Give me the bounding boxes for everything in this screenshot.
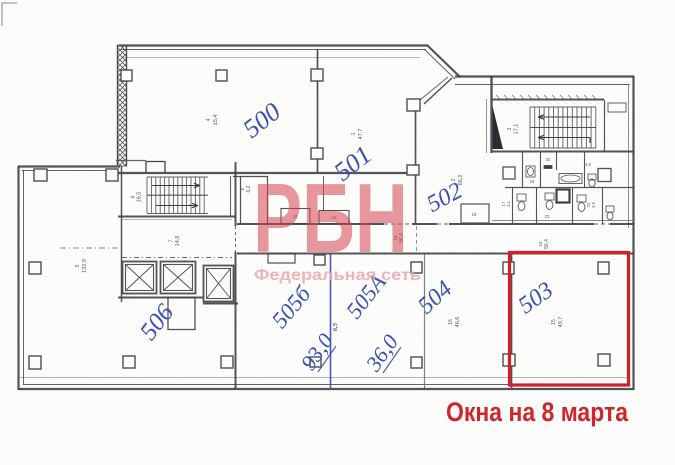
svg-text:16: 16 bbox=[448, 319, 454, 325]
svg-text:6,2: 6,2 bbox=[246, 185, 252, 192]
svg-text:14,9: 14,9 bbox=[175, 236, 181, 247]
svg-text:2: 2 bbox=[451, 178, 457, 181]
svg-text:15: 15 bbox=[551, 319, 557, 325]
svg-text:46,6: 46,6 bbox=[455, 317, 461, 328]
svg-text:47,7: 47,7 bbox=[358, 129, 364, 140]
svg-text:Окна на 8 марта: Окна на 8 марта bbox=[446, 397, 629, 427]
svg-text:5: 5 bbox=[75, 264, 81, 267]
svg-text:16,5: 16,5 bbox=[137, 192, 143, 203]
svg-text:23: 23 bbox=[545, 214, 550, 219]
svg-text:132,9: 132,9 bbox=[82, 259, 88, 273]
svg-text:3,6: 3,6 bbox=[591, 201, 596, 207]
svg-text:56,4: 56,4 bbox=[544, 239, 550, 249]
svg-text:20: 20 bbox=[546, 157, 551, 162]
svg-text:4,6: 4,6 bbox=[585, 162, 591, 167]
svg-text:1: 1 bbox=[351, 132, 357, 135]
svg-text:РБН: РБН bbox=[253, 163, 408, 273]
svg-text:7: 7 bbox=[169, 239, 175, 242]
svg-text:6,5: 6,5 bbox=[332, 322, 339, 331]
svg-text:3: 3 bbox=[507, 127, 513, 130]
svg-text:Федеральная сеть: Федеральная сеть bbox=[254, 267, 421, 284]
svg-text:66,2: 66,2 bbox=[458, 175, 464, 186]
svg-text:18: 18 bbox=[471, 212, 477, 217]
svg-text:17,1: 17,1 bbox=[514, 124, 520, 135]
svg-text:3,1: 3,1 bbox=[506, 200, 511, 206]
svg-text:49,7: 49,7 bbox=[558, 317, 564, 328]
svg-text:18: 18 bbox=[530, 179, 535, 184]
svg-text:16: 16 bbox=[538, 241, 543, 247]
svg-text:4: 4 bbox=[206, 118, 212, 121]
svg-text:15,4: 15,4 bbox=[213, 115, 219, 126]
